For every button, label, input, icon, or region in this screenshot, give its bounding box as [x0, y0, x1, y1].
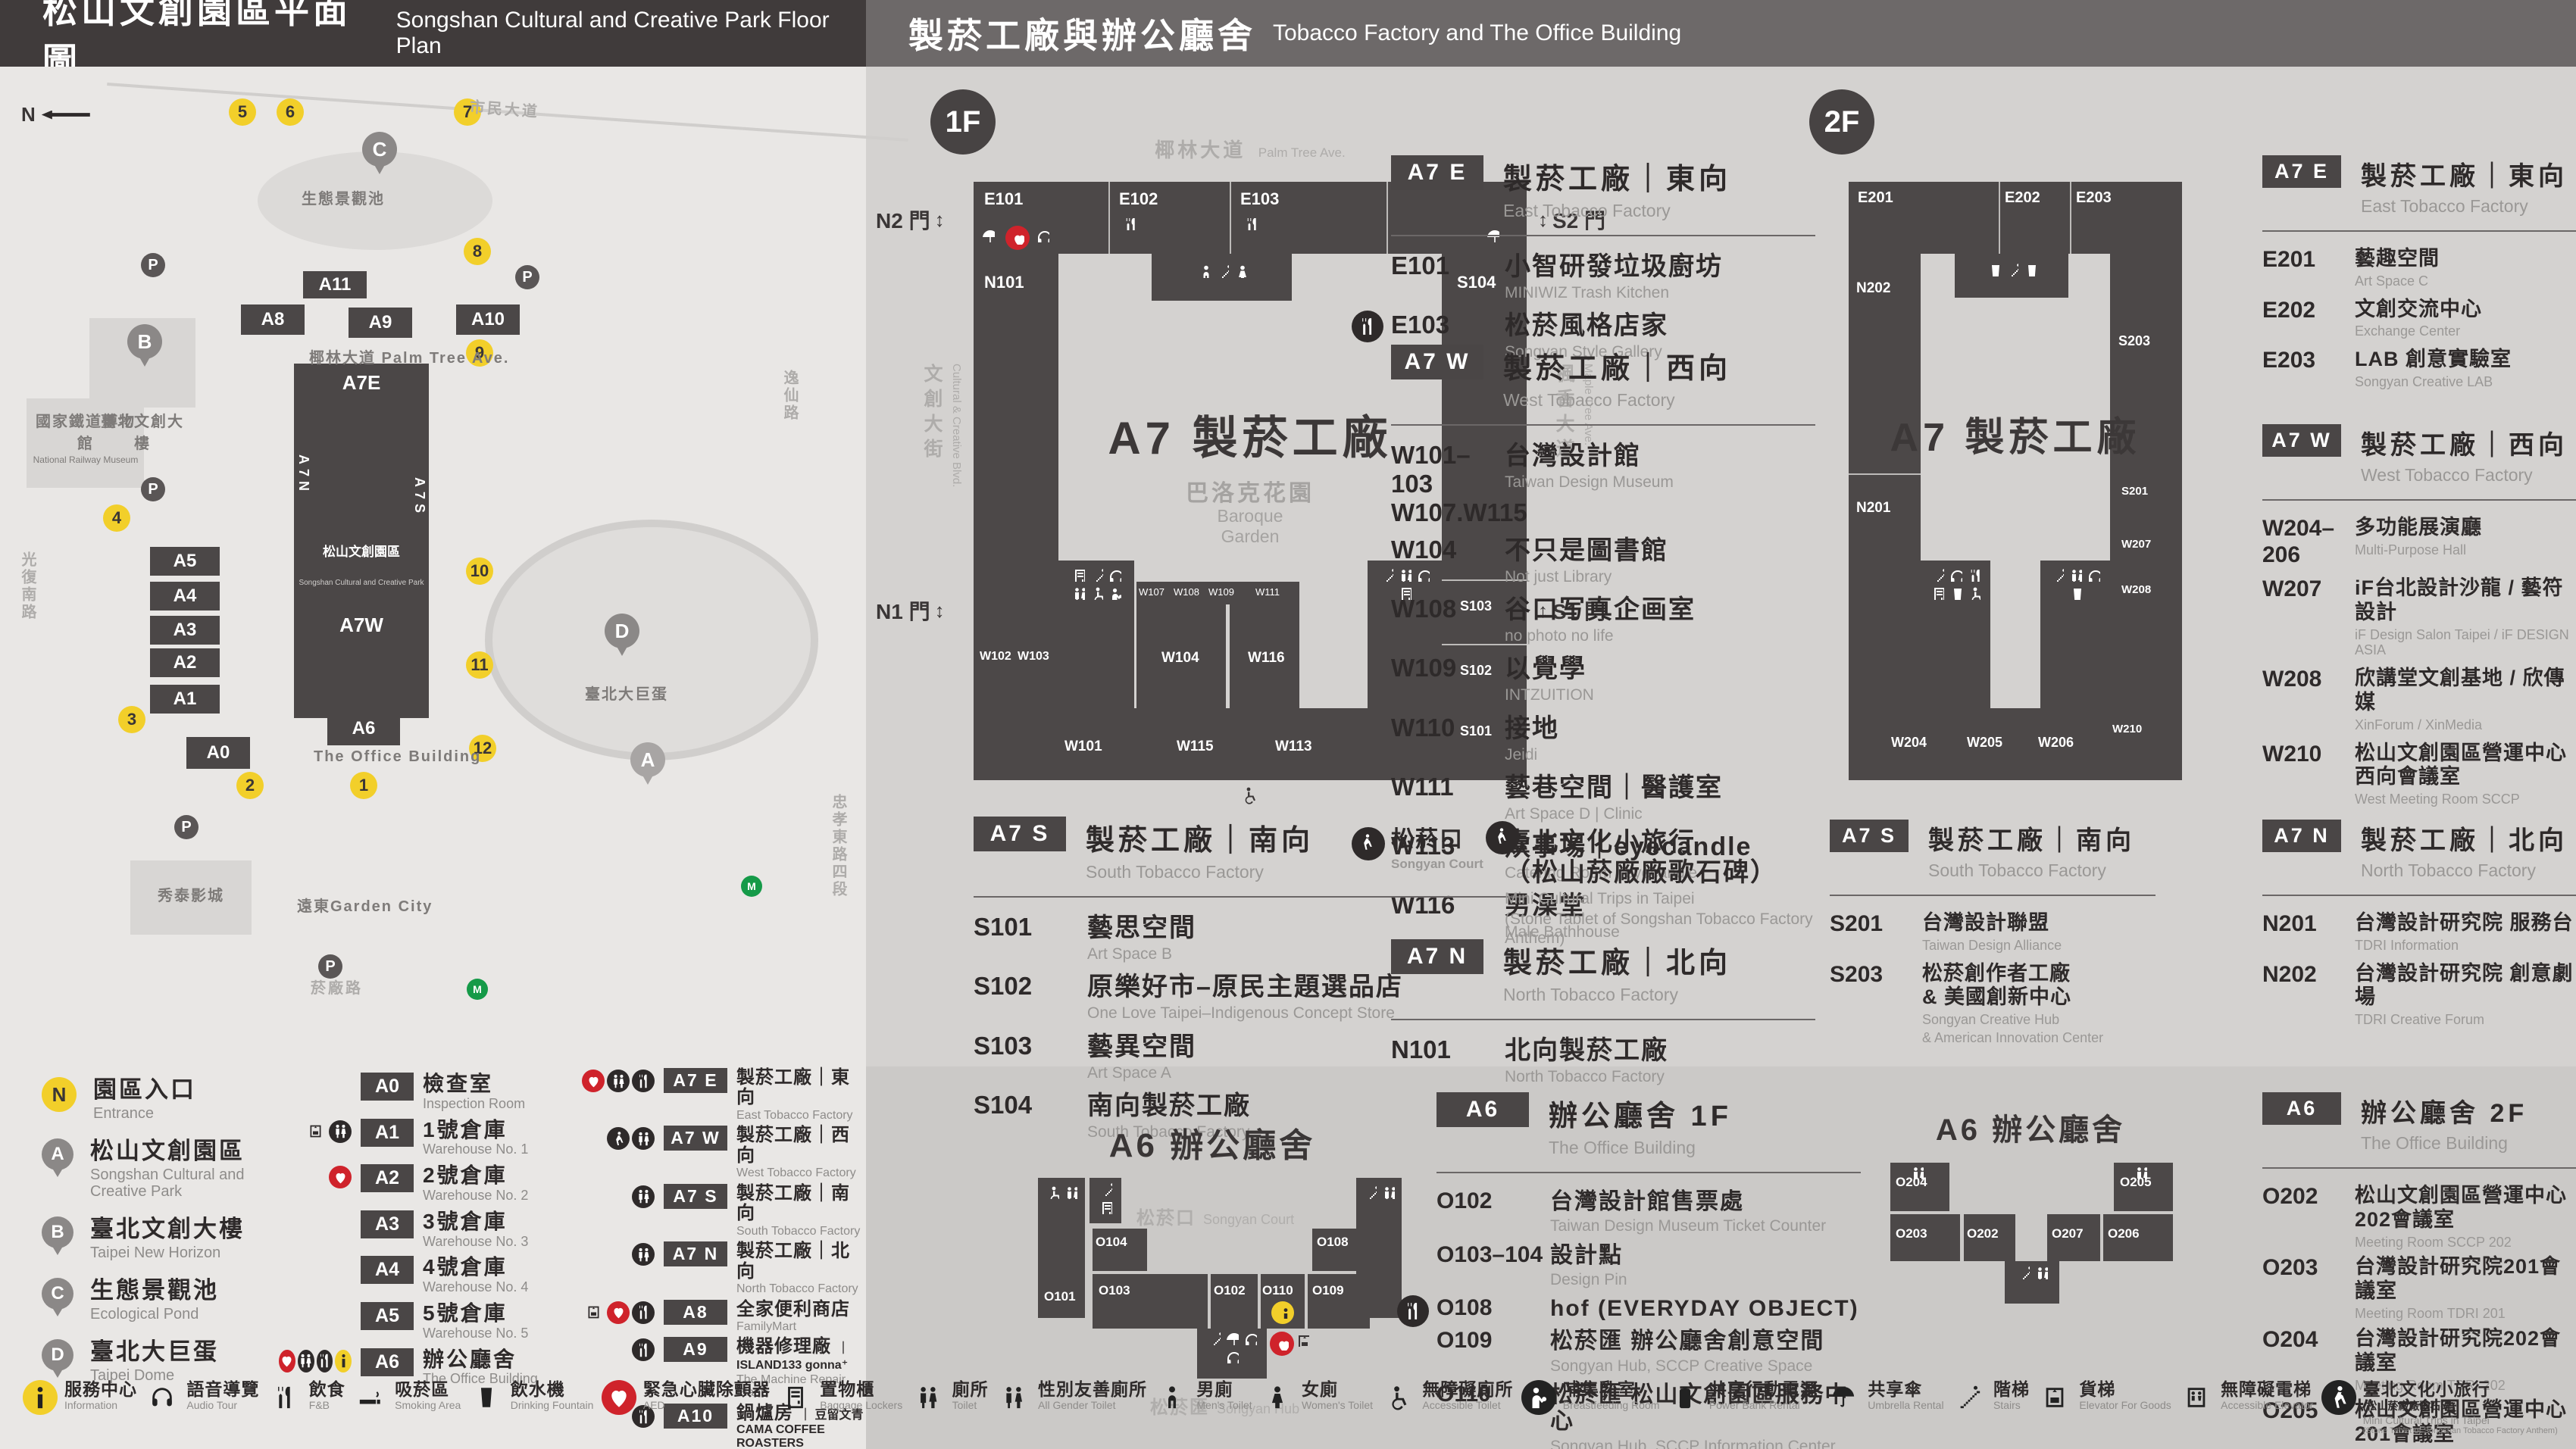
facility-item: 貨梯 Elevator For Goods: [2037, 1380, 2171, 1415]
left-title-en: Songshan Cultural and Creative Park Floo…: [396, 8, 866, 59]
toilet-icon: [911, 1380, 946, 1415]
aed-icon: [279, 1350, 295, 1372]
legend-place-row: C 生態景觀池Ecological Pond: [42, 1278, 284, 1323]
plan-room-label: W204: [1891, 735, 1927, 751]
audio-tour-icon: [1036, 229, 1049, 242]
aed-icon: [1005, 226, 1030, 250]
divider: [1391, 1019, 1815, 1020]
landmark-label: The Office Building: [314, 748, 481, 766]
legend-place-symbol: B: [42, 1216, 73, 1248]
landmark-label: 臺北大巨蛋: [585, 682, 668, 704]
plan-room-label: O202: [1967, 1226, 1999, 1241]
plan2f-right-wing: [2110, 254, 2182, 708]
allgender-icon: [996, 1380, 1031, 1415]
section-a7n-1f: A7 N 製菸工廠｜北向North Tobacco Factory N101 北…: [1391, 939, 1815, 1095]
map-entrance-gate: 10: [466, 557, 493, 585]
trips-icon: [2321, 1380, 2356, 1415]
landmark-label: 生態景觀池: [302, 186, 385, 208]
aed-icon: [607, 1301, 630, 1324]
room-row: N201 台灣設計研究院 服務台TDRI Information: [2262, 911, 2576, 954]
right-title-en: Tobacco Factory and The Office Building: [1273, 20, 1681, 46]
map-building-block: A2: [150, 648, 220, 677]
core-icons: [1924, 568, 1987, 600]
plan-room-label: O203: [1896, 1226, 1927, 1241]
taipei-dome-shape: [485, 520, 818, 760]
toilet-icon: [1064, 1185, 1077, 1199]
section-badge: A7 E: [1391, 155, 1483, 190]
map-building-block: A1: [150, 685, 220, 714]
section-badge: A7 N: [1391, 939, 1483, 974]
facility-item: 廁所 Toilet: [911, 1380, 989, 1415]
room-row: W104 不只是圖書館Not just Library: [1391, 536, 1815, 586]
section-badge: A7 S: [1830, 820, 1909, 852]
plan-room-label: W108: [1174, 586, 1199, 598]
aed-icon: [582, 1070, 605, 1092]
section-a7n-2f: A7 N 製菸工廠｜北向North Tobacco Factory N201 台…: [2262, 820, 2576, 1036]
section-a7e-2f: A7 E 製菸工廠｜東向East Tobacco Factory E201 藝趣…: [2262, 155, 2576, 398]
legend-place-symbol: N: [42, 1077, 77, 1112]
mini-trips-icon: [1352, 827, 1385, 860]
divider: [2262, 499, 2576, 501]
wheelchair-icon: [1380, 1380, 1415, 1415]
section-badge: A6: [1436, 1092, 1529, 1127]
map-entrance-gate: 3: [118, 706, 145, 733]
map-entrance-gate: 6: [277, 98, 304, 126]
a6-stem: [2005, 1261, 2059, 1304]
plan-room-label: E103: [1240, 189, 1279, 209]
songyan-court-label: 松菸口Songyan Court: [1136, 1203, 1294, 1229]
street-label: 菸廠路: [311, 976, 363, 998]
accessible-icon: [1089, 586, 1103, 600]
audio-tour-icon: [1243, 1332, 1257, 1345]
woman-icon: [1260, 1380, 1295, 1415]
mrt-icon: M: [467, 979, 488, 1000]
info-icon: [23, 1380, 58, 1415]
plan2f-east-core: [2040, 561, 2110, 708]
divider: [1999, 182, 2000, 254]
aed-icon: [329, 1166, 352, 1188]
toilet-icon: [632, 1185, 655, 1208]
map-pin-b: B: [127, 324, 162, 359]
a6-room-block: [1308, 1274, 1370, 1329]
facility-item: 性別友善廁所 All Gender Toilet: [996, 1380, 1147, 1415]
locker-icon: [1071, 568, 1085, 582]
facility-item: 階梯 Stairs: [1952, 1380, 2030, 1415]
parking-icon: P: [515, 265, 539, 289]
floor1-badge: 1F: [930, 89, 996, 155]
map-building-block: A0: [186, 737, 250, 769]
map-pin-c: C: [362, 132, 397, 167]
goodslift-icon: [582, 1301, 605, 1324]
map-building-block: A10: [456, 304, 520, 335]
plan-room-label: W208: [2121, 583, 2151, 596]
a6-2f-title: A6 辦公廳舍: [1871, 1105, 2190, 1149]
compass-bar-icon: [42, 111, 90, 120]
locker-icon: [1099, 1201, 1112, 1214]
facility-item: 置物櫃 Baggage Lockers: [778, 1380, 902, 1415]
stairs-icon: [1207, 1332, 1221, 1345]
breastfeeding-icon: [1108, 586, 1121, 600]
parking-icon: P: [174, 815, 199, 839]
plan-room-label: N101: [984, 273, 1024, 292]
room-row: E101 小智研發垃圾廚坊MINIWIZ Trash Kitchen: [1391, 251, 1815, 302]
plan1f-west-core: [1058, 561, 1134, 708]
plan-room-label: O109: [1312, 1283, 1344, 1298]
legend-building-row: A1 1號倉庫Warehouse No. 1: [279, 1119, 574, 1158]
plan-room-label: E101: [984, 189, 1023, 209]
fork-icon: [632, 1338, 655, 1361]
toilet-icon: [329, 1120, 352, 1143]
section-badge: A7 W: [2262, 424, 2341, 457]
map-pin-d: D: [605, 614, 639, 648]
landmark-label: 臺北文創大樓: [95, 409, 189, 453]
legend-place-symbol: D: [42, 1339, 73, 1371]
divider: [1391, 235, 1815, 236]
accessible-icon: [1240, 786, 1258, 804]
divider: [1830, 895, 2156, 896]
landmark-label: 秀泰影城: [148, 883, 233, 905]
stairs-icon: [2016, 1266, 2030, 1279]
mens-toilet-icon: [1197, 264, 1211, 278]
divider: [1849, 473, 1921, 475]
plan-room-label: O108: [1317, 1235, 1349, 1250]
legend-building-row: A4 4號倉庫Warehouse No. 4: [279, 1256, 574, 1295]
information-icon: [1271, 1301, 1294, 1324]
right-panel-header: 製菸工廠與辦公廳舍 Tobacco Factory and The Office…: [866, 0, 2576, 67]
cultural-blvd-label: 文創大街Cultural & Creative Blvd.: [918, 364, 963, 487]
facility-item: 飲食 F&B: [267, 1380, 345, 1415]
stairs-icon: [2005, 263, 2018, 276]
divider: [2262, 230, 2576, 232]
plan-room-label: W206: [2038, 735, 2074, 751]
map-building-block: A8: [241, 304, 305, 335]
facility-item: 哺集乳室 Breastfeeding Room: [1521, 1380, 1660, 1415]
room-row: W111 藝巷空間｜醫護室Art Space D | Clinic: [1391, 773, 1815, 823]
floor2-badge: 2F: [1809, 89, 1874, 155]
legend-building-row: A5 5號倉庫Warehouse No. 5: [279, 1302, 574, 1341]
plan-room-label: O207: [2052, 1226, 2084, 1241]
plan-room-label: W210: [2112, 723, 2142, 735]
legend-factory-row: A8 全家便利商店FamilyMart: [576, 1300, 866, 1334]
a6-floor1-plan: A6 辦公廳舍: [1023, 1113, 1402, 1371]
toilet-icon: [298, 1350, 314, 1372]
core-icons: [2043, 568, 2107, 600]
audio-tour-icon: [1949, 568, 1962, 582]
plan-room-label: N201: [1856, 500, 1890, 517]
map-a7-building: A7E A 松山文創園區 Songshan Cultural and Creat…: [294, 364, 429, 718]
landmark-label: 椰林大道 Palm Tree Ave.: [309, 345, 509, 367]
plan-room-label: W107: [1139, 586, 1165, 598]
room-row: N202 台灣設計研究院 創意劇場TDRI Creative Forum: [2262, 962, 2576, 1028]
aed-icon: [602, 1380, 636, 1415]
plan-room-label: W116: [1248, 650, 1285, 667]
umbrella-icon: [981, 229, 995, 242]
toilet-icon: [1071, 586, 1085, 600]
map-building-block: A6: [327, 712, 400, 745]
room-row: O108 hof (EVERYDAY OBJECT): [1436, 1295, 1861, 1322]
divider: [1230, 182, 1231, 254]
plan2f-west-core: [1921, 561, 1990, 708]
stairs-icon: [1930, 568, 1944, 582]
stairs-icon: [2050, 568, 2064, 582]
facility-item: 女廁 Women's Toilet: [1260, 1380, 1373, 1415]
legend-place-symbol: C: [42, 1278, 73, 1310]
restaurant-icon: [1122, 217, 1136, 230]
stairs-icon: [1099, 1182, 1112, 1196]
section-a7w-2f: A7 W 製菸工廠｜西向West Tobacco Factory W204–20…: [2262, 424, 2576, 816]
plan1f-top-core: [1152, 254, 1292, 301]
map-building-block: A11: [303, 271, 367, 298]
stairs-icon: [1952, 1380, 1987, 1415]
palm-tree-ave-label: 椰林大道 Palm Tree Ave.: [1099, 135, 1402, 163]
fork-icon: [632, 1070, 655, 1092]
legend-place-row: D 臺北大巨蛋Taipei Dome: [42, 1339, 284, 1384]
room-row: O102 台灣設計館售票處Taiwan Design Museum Ticket…: [1436, 1188, 1861, 1236]
legend-place-row: A 松山文創園區Songshan Cultural and Creative P…: [42, 1138, 284, 1200]
map-entrance-gate: 2: [236, 772, 264, 799]
parking-icon: P: [141, 253, 165, 277]
map-park-name-en: Songshan Cultural and Creative Park: [294, 579, 429, 588]
divider: [2262, 1167, 2576, 1169]
map-entrance-gate: 1: [350, 772, 377, 799]
legend-place-row: N 園區入口Entrance: [42, 1077, 284, 1122]
plan-room-label: O103: [1099, 1283, 1130, 1298]
street-label: 忠孝東路四段: [827, 794, 849, 898]
divider: [1386, 182, 1388, 254]
room-row: W207 iF台北設計沙龍 / 藝符設計iF Design Salon Taip…: [2262, 576, 2576, 658]
toilet-icon: [607, 1070, 630, 1092]
plan-room-label: O110: [1262, 1283, 1293, 1298]
map-a7w-label: A7W: [294, 614, 429, 637]
floor-plan-poster: 松山文創園區平面圖 Songshan Cultural and Creative…: [0, 0, 2576, 1449]
map-a7n-label: A7N: [295, 454, 311, 495]
stairs-icon: [1215, 264, 1229, 278]
map-building-block: A9: [349, 308, 412, 338]
room-row: N101 北向製菸工廠North Tobacco Factory: [1391, 1035, 1815, 1086]
man-icon: [1155, 1380, 1190, 1415]
plan-gate-label: ↕N1 門: [876, 595, 945, 626]
facility-item: 臺北文化小旅行(松山菸廠廠歌石碑) Mini Cultural Trips in…: [2321, 1380, 2558, 1435]
north-arrow: N: [21, 103, 90, 126]
plan-room-label: O102: [1214, 1283, 1246, 1298]
map-a7e-label: A7E: [294, 371, 429, 395]
room-row: E201 藝趣空間Art Space C: [2262, 247, 2576, 289]
plan-room-label: O205: [2120, 1175, 2152, 1190]
a6-1f-title: A6 辦公廳舍: [1023, 1118, 1402, 1166]
accessible-icon: [1046, 1185, 1059, 1199]
room-row: W109 以覺學INTZUITION: [1391, 654, 1815, 704]
plan-room-label: W111: [1255, 586, 1280, 598]
legend-building-row: A2 2號倉庫Warehouse No. 2: [279, 1164, 574, 1204]
plan-room-label: E102: [1119, 189, 1158, 209]
acclift-icon: [2179, 1380, 2214, 1415]
fork-icon: [267, 1380, 302, 1415]
room-row: E203 LAB 創意實驗室Songyan Creative LAB: [2262, 348, 2576, 390]
locker-icon: [778, 1380, 813, 1415]
plan-room-label: W104: [1161, 650, 1199, 667]
plan-room-label: W102: [980, 650, 1011, 664]
a6-room-block: [1093, 1274, 1208, 1329]
divider: [1391, 424, 1815, 426]
cup-icon: [469, 1380, 504, 1415]
facility-item: 共享行動電源 Power Bank Rental: [1668, 1380, 1818, 1415]
room-row: S203 松菸創作者工廠& 美國創新中心Songyan Creative Hub…: [1830, 962, 2156, 1046]
floor2-plan: A7 製菸工廠 E201 E202 E203 N202 N201 S203 S2…: [1849, 182, 2182, 780]
drinking-fountain-icon: [1987, 263, 2000, 276]
facility-item: 共享傘 Umbrella Rental: [1826, 1380, 1943, 1415]
room-row: O109 松菸匯 辦公廳舍創意空間Songyan Hub, SCCP Creat…: [1436, 1328, 1861, 1376]
facility-item: 語音導覽 Audio Tour: [145, 1380, 259, 1415]
map-entrance-gate: 8: [464, 238, 491, 265]
room-row: O103–104 設計點Design Pin: [1436, 1242, 1861, 1290]
umbrella-icon: [1225, 1332, 1239, 1345]
core-icons: [1152, 264, 1292, 278]
cig-icon: [353, 1380, 388, 1415]
plan2f-center-label: A7 製菸工廠: [1849, 405, 2182, 462]
legend-factory-row: A7 E 製菸工廠｜東向East Tobacco Factory: [576, 1068, 866, 1122]
court-row: 松菸口Songyan Court 臺北文化小旅行（松山菸廠廠歌石碑） Mini …: [1391, 827, 1815, 948]
room-row: W210 松山文創園區營運中心西向會議室West Meeting Room SC…: [2262, 742, 2576, 807]
plan-room-label: N202: [1856, 280, 1890, 297]
divider: [2070, 182, 2071, 254]
toilet-icon: [1381, 1185, 1395, 1199]
goodslift-icon: [2037, 1380, 2072, 1415]
room-row: W204–206 多功能展演廳Multi-Purpose Hall: [2262, 516, 2576, 568]
a6-room-block: [1261, 1274, 1305, 1329]
section-badge: A7 E: [2262, 155, 2341, 188]
a6-mini-core: [1089, 1178, 1121, 1223]
drinking-fountain-icon: [1949, 586, 1962, 600]
plan-room-label: E202: [2005, 189, 2040, 207]
facility-item: 飲水機 Drinking Fountain: [469, 1380, 594, 1415]
restaurant-icon: [1967, 568, 1980, 582]
plan-room-label: O206: [2108, 1226, 2140, 1241]
plan-room-label: S201: [2121, 485, 2148, 498]
room-row: E202 文創交流中心Exchange Center: [2262, 298, 2576, 340]
goodslift-icon: [304, 1120, 327, 1143]
street-label: 光復南路: [17, 551, 39, 621]
baby-icon: [1521, 1380, 1556, 1415]
plan-room-label: E201: [1858, 189, 1893, 207]
section-a7e-1f: A7 E 製菸工廠｜東向East Tobacco Factory E101 小智…: [1391, 155, 1815, 370]
fork-icon: [317, 1350, 333, 1372]
audio-tour-icon: [1225, 1350, 1239, 1363]
aed-icon: [1270, 1332, 1294, 1356]
toilet-icon: [2034, 1266, 2048, 1279]
plan-room-label: W113: [1275, 739, 1312, 755]
section-badge: A7 N: [2262, 820, 2341, 852]
left-panel-header: 松山文創園區平面圖 Songshan Cultural and Creative…: [0, 0, 866, 67]
map-entrance-gate: 4: [103, 504, 130, 532]
map-park-name-zh: 松山文創園區: [294, 544, 429, 560]
facilities-legend-strip: 服務中心 Information 語音導覽 Audio Tour 飲食 F&B …: [23, 1380, 2558, 1435]
plan-room-label: W115: [1177, 739, 1214, 755]
facility-item: 無障礙廁所 Accessible Toilet: [1380, 1380, 1513, 1415]
room-row: W101–103W107.W115 台灣設計館Taiwan Design Mus…: [1391, 441, 1815, 527]
divider: [1108, 182, 1110, 254]
room-row: O203 台灣設計研究院201會議室Meeting Room TDRI 201: [2262, 1255, 2576, 1321]
divider: [1436, 1172, 1861, 1173]
mrt-icon: M: [741, 876, 762, 897]
womens-toilet-icon: [1233, 264, 1247, 278]
parking-icon: P: [141, 477, 165, 501]
street-label: 逸仙路: [779, 370, 801, 422]
plan-room-label: W103: [1018, 650, 1049, 664]
legend-factory-row: A7 W 製菸工廠｜西向West Tobacco Factory: [576, 1126, 866, 1179]
map-entrance-gate: 5: [229, 98, 256, 126]
plan-room-label: W207: [2121, 538, 2151, 551]
section-songyan-court: 松菸口Songyan Court 臺北文化小旅行（松山菸廠廠歌石碑） Mini …: [1391, 827, 1815, 956]
map-building-block: A3: [150, 616, 220, 645]
a6-room-block: [1211, 1274, 1258, 1329]
legend-factory-row: A7 S 製菸工廠｜南向South Tobacco Factory: [576, 1184, 866, 1238]
plan-room-label: W109: [1208, 586, 1234, 598]
drinking-fountain-icon: [2068, 586, 2082, 600]
legend-factory-row: A7 N 製菸工廠｜北向North Tobacco Factory: [576, 1241, 866, 1295]
legend-place-symbol: A: [42, 1138, 73, 1170]
map-entrance-gate: 11: [466, 651, 493, 679]
section-a7s-2f: A7 S 製菸工廠｜南向South Tobacco Factory S201 台…: [1830, 820, 2156, 1054]
plan-room-label: W205: [1967, 735, 2002, 751]
restaurant-icon: [1243, 217, 1257, 230]
toilet-icon: [632, 1127, 655, 1150]
room-row: W208 欣講堂文創基地 / 欣傳媒XinForum / XinMedia: [2262, 667, 2576, 732]
map-building-block: A4: [150, 582, 220, 611]
plan-gate-label: ↕N2 門: [876, 205, 945, 235]
plan-room-label: O101: [1044, 1289, 1076, 1304]
plan-room-label: E203: [2076, 189, 2112, 207]
toilet-icon: [632, 1243, 655, 1266]
room-row: O202 松山文創園區營運中心202會議室Meeting Room SCCP 2…: [2262, 1184, 2576, 1250]
trips-icon: [607, 1127, 630, 1150]
room-row: W110 接地Jeidi: [1391, 714, 1815, 764]
plan-room-label: S203: [2118, 333, 2150, 349]
fork-icon: [1352, 311, 1383, 342]
map-building-block: A5: [150, 547, 220, 576]
right-title-zh: 製菸工廠與辦公廳舍: [908, 8, 1256, 58]
locker-icon: [1930, 586, 1944, 600]
core-icons: [1955, 263, 2068, 276]
facility-item: 緊急心臟除顫器 AED: [602, 1380, 771, 1415]
fork-icon: [632, 1301, 655, 1324]
facility-item: 無障礙電梯 Accessible Elevator: [2179, 1380, 2313, 1415]
facility-item: 服務中心 Information: [23, 1380, 137, 1415]
plan2f-left-wing: [1849, 254, 1921, 708]
plan-room-label: W101: [1064, 739, 1102, 755]
accessible-icon: [1967, 586, 1980, 600]
info-icon: [335, 1350, 352, 1372]
core-icons: [1063, 568, 1130, 600]
stairs-icon: [1363, 1185, 1377, 1199]
legend-place-row: B 臺北文創大樓Taipei New Horizon: [42, 1216, 284, 1261]
plan-room-label: O204: [1896, 1175, 1927, 1190]
map-legend: N 園區入口Entrance A 松山文創園區Songshan Cultural…: [0, 1066, 866, 1362]
drinking-fountain-icon: [2023, 263, 2037, 276]
toilet-icon: [2068, 568, 2082, 582]
map-pin-a: A: [630, 742, 665, 777]
north-label: N: [21, 103, 36, 126]
facility-item: 吸菸區 Smoking Area: [353, 1380, 461, 1415]
legend-building-row: A0 檢查室Inspection Room: [279, 1073, 574, 1112]
section-badge: A7 W: [1391, 345, 1483, 379]
audio-tour-icon: [2087, 568, 2100, 582]
stairs-icon: [1089, 568, 1103, 582]
audio-tour-icon: [1108, 568, 1121, 582]
umbrella-icon: [1826, 1380, 1861, 1415]
goods-elevator-icon: [1296, 1333, 1309, 1347]
legend-building-row: A3 3號倉庫Warehouse No. 3: [279, 1210, 574, 1250]
section-badge: A7 S: [974, 817, 1066, 851]
